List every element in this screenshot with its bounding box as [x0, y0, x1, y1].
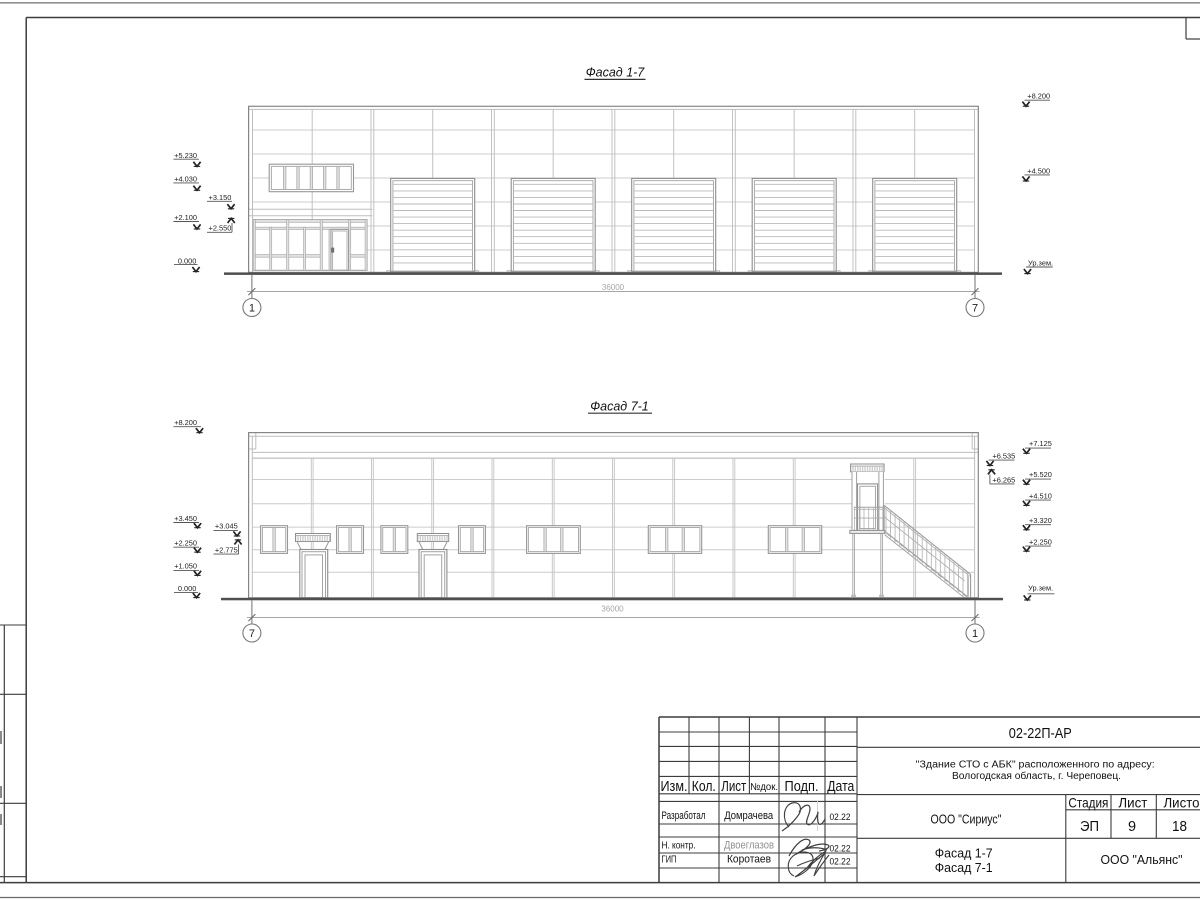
svg-text:18: 18: [1172, 819, 1187, 835]
svg-text:+3.320: +3.320: [1029, 516, 1052, 525]
svg-text:02-22П-АР: 02-22П-АР: [1009, 725, 1072, 742]
svg-text:7: 7: [249, 628, 255, 640]
svg-text:+4.500: +4.500: [1027, 166, 1050, 175]
svg-text:+6.535: +6.535: [992, 451, 1015, 460]
svg-text:Кол.: Кол.: [692, 779, 716, 795]
svg-text:+1.050: +1.050: [174, 562, 197, 571]
svg-text:+5.230: +5.230: [174, 151, 197, 160]
svg-text:Фасад 7-1: Фасад 7-1: [935, 861, 993, 875]
svg-text:ЭП: ЭП: [1080, 819, 1099, 835]
svg-text:Подп.: Подп.: [785, 779, 819, 795]
svg-text:+3.045: +3.045: [215, 522, 238, 531]
svg-text:1: 1: [249, 302, 255, 314]
svg-text:0.000: 0.000: [178, 584, 197, 593]
svg-text:+4.510: +4.510: [1029, 491, 1052, 500]
svg-text:+2.775: +2.775: [215, 546, 238, 555]
svg-text:+6.265: +6.265: [992, 475, 1015, 484]
svg-text:36000: 36000: [601, 605, 624, 614]
svg-text:02.22: 02.22: [830, 857, 851, 868]
svg-text:+7.125: +7.125: [1029, 439, 1052, 448]
svg-text:Лист: Лист: [721, 779, 746, 795]
svg-text:Дата: Дата: [827, 779, 855, 795]
svg-text:9: 9: [1128, 819, 1136, 835]
svg-text:Коротаев: Коротаев: [727, 853, 771, 865]
svg-text:+2.250: +2.250: [1029, 537, 1052, 546]
svg-text:+3.450: +3.450: [174, 514, 197, 523]
svg-text:+4.030: +4.030: [174, 175, 197, 184]
svg-text:+3.150: +3.150: [209, 193, 232, 202]
svg-text:Н. контр.: Н. контр.: [662, 840, 696, 852]
svg-text:ООО "Альянс": ООО "Альянс": [1101, 852, 1183, 867]
svg-text:36000: 36000: [602, 283, 625, 292]
svg-text:02.22: 02.22: [830, 812, 851, 823]
svg-text:Ур.зем.: Ур.зем.: [1028, 584, 1053, 593]
svg-text:Изм.: Изм.: [661, 779, 688, 795]
svg-text:+8.200: +8.200: [1027, 92, 1050, 101]
svg-text:Фасад 1-7: Фасад 1-7: [935, 847, 993, 861]
svg-text:+2.550: +2.550: [209, 224, 232, 233]
svg-text:Фасад 7-1: Фасад 7-1: [590, 399, 649, 413]
svg-text:Двоеглазов: Двоеглазов: [724, 840, 774, 852]
svg-text:+5.520: +5.520: [1029, 470, 1052, 479]
svg-text:+2.100: +2.100: [174, 213, 197, 222]
svg-text:№док.: №док.: [750, 782, 778, 793]
svg-text:02.22: 02.22: [830, 844, 851, 855]
svg-text:1: 1: [972, 628, 978, 640]
svg-text:7: 7: [972, 302, 978, 314]
svg-text:+8.200: +8.200: [174, 418, 197, 427]
svg-text:ООО "Сириус": ООО "Сириус": [931, 811, 1002, 826]
svg-text:Стадия: Стадия: [1068, 795, 1108, 811]
svg-text:ГИП: ГИП: [662, 853, 677, 865]
svg-text:Лист: Лист: [1118, 795, 1148, 811]
svg-text:+2.250: +2.250: [174, 539, 197, 548]
svg-text:Разработал: Разработал: [662, 810, 706, 822]
svg-text:Вологодская область, г. Черепо: Вологодская область, г. Череповец.: [952, 770, 1121, 782]
svg-text:Фасад 1-7: Фасад 1-7: [586, 66, 646, 80]
svg-text:Листов: Листов: [1164, 795, 1200, 811]
svg-text:0.000: 0.000: [178, 256, 197, 265]
svg-text:Ур.зем.: Ур.зем.: [1028, 258, 1053, 267]
svg-text:"Здание СТО с АБК" расположенн: "Здание СТО с АБК" расположенного по адр…: [916, 760, 1155, 771]
svg-text:Домрачева: Домрачева: [724, 810, 774, 822]
